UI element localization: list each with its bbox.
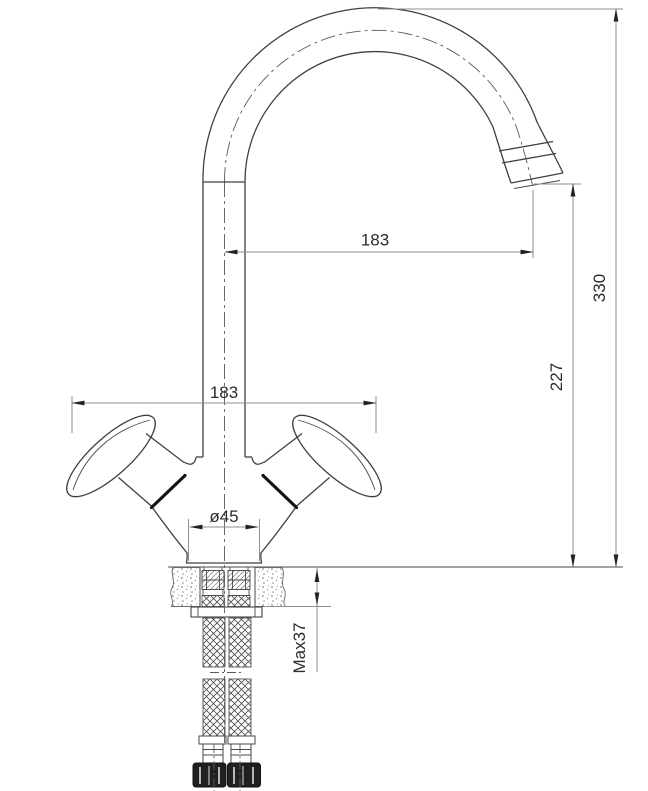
washer-flange — [191, 607, 262, 617]
dim-handle-span-label: 183 — [210, 383, 238, 402]
technical-drawing-svg: 183 330 227 183 ø45 Max37 — [0, 0, 648, 791]
hose-fitting-right — [228, 736, 261, 787]
dim-overall-height: 330 — [378, 9, 623, 567]
hose-right-lower — [229, 679, 251, 736]
handle-left-stem-upper — [146, 434, 184, 463]
faucet-body — [56, 8, 563, 563]
counter-block-right — [255, 568, 286, 607]
hose-left-lower — [203, 679, 225, 736]
handle-left-stem-end-bold — [152, 476, 186, 508]
dim-outlet-height: 227 — [534, 184, 581, 567]
supply-tube-right — [228, 567, 250, 607]
faucet-dimension-drawing: 183 330 227 183 ø45 Max37 — [0, 0, 648, 791]
bell-flare-right — [261, 507, 296, 563]
handle-right-stem-upper — [264, 434, 302, 463]
dim-spout-reach-label: 183 — [361, 231, 389, 250]
hose-nut-right — [228, 763, 261, 787]
handle-right-stem-end-bold — [263, 476, 297, 508]
aerator-band-lower — [502, 154, 556, 164]
spout-centerline — [224, 30, 532, 185]
handle-right — [263, 404, 392, 509]
fillet-left — [184, 458, 196, 465]
dim-base-diameter-label: ø45 — [209, 507, 238, 526]
bell-flare-left — [152, 507, 187, 563]
spout-outer-edge — [203, 8, 563, 182]
dim-max-thickness-label: Max37 — [290, 622, 309, 673]
centerlines — [210, 30, 533, 791]
handle-left — [56, 404, 185, 509]
counter-block-left — [171, 568, 200, 607]
aerator-band-upper — [499, 142, 553, 152]
dim-outlet-height-label: 227 — [547, 363, 566, 391]
spout — [203, 8, 563, 189]
dim-base-diameter: ø45 — [189, 507, 260, 561]
riser-pipe — [203, 182, 245, 457]
hose-left-upper — [203, 618, 225, 667]
hose-right-upper — [229, 618, 251, 667]
mounting-shank — [191, 567, 262, 617]
dim-handle-span: 183 — [72, 383, 376, 433]
spout-inner-edge — [245, 52, 511, 183]
handle-right-stem-lower — [296, 478, 330, 507]
dim-spout-reach: 183 — [225, 190, 533, 258]
supply-hoses — [193, 618, 261, 787]
supply-tube-left — [202, 567, 224, 607]
handle-left-stem-lower — [119, 478, 153, 507]
hose-fitting-left — [193, 736, 226, 787]
dim-overall-height-label: 330 — [590, 274, 609, 302]
fillet-right — [252, 458, 264, 465]
